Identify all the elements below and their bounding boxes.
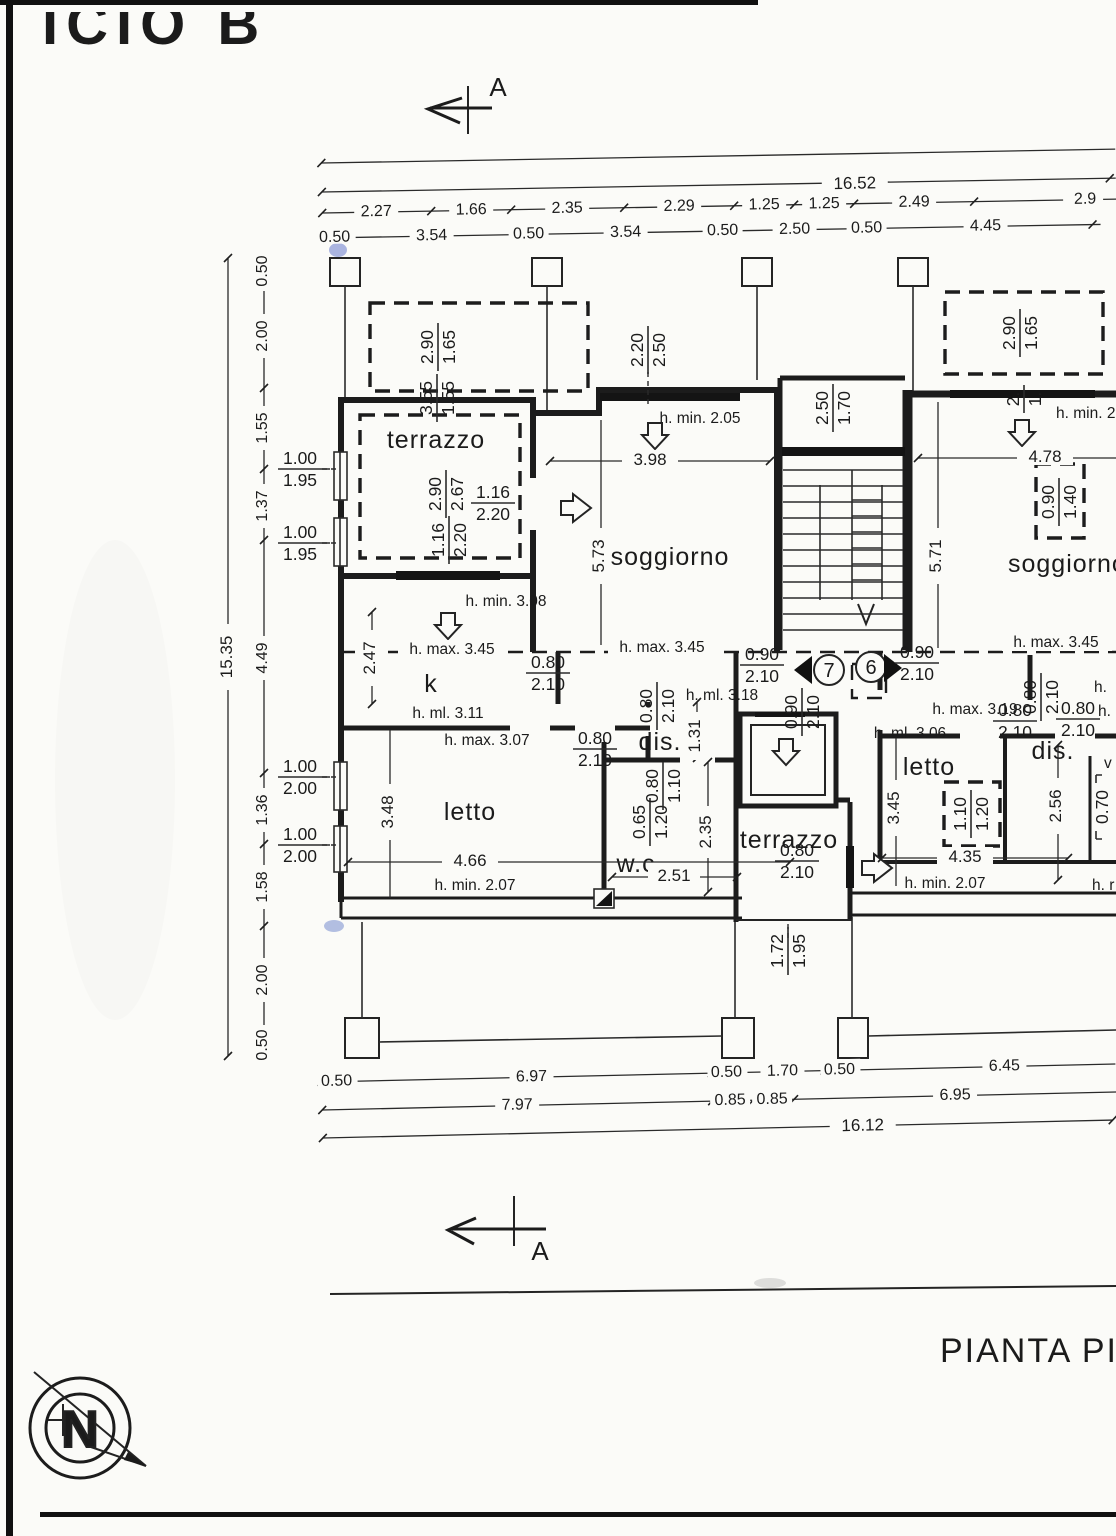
dim-hall-door-left: 0.902.10 — [740, 644, 784, 686]
dim-wall: 0.50 — [513, 225, 545, 243]
dim-letto-w: 4.66 — [453, 851, 486, 870]
dim-letto-left-door: 0.802.10 — [573, 728, 617, 770]
dim-soggiorno-right-window: 0.901.40 — [1038, 478, 1080, 526]
svg-text:2.50: 2.50 — [812, 391, 832, 425]
svg-text:2.10: 2.10 — [578, 750, 612, 770]
arrow-right-terrazzo-icon — [561, 494, 591, 522]
dim-kitchen-h: 2.47 — [360, 641, 379, 674]
dim-terrazzo-door-s: 1.162.20 — [428, 516, 470, 564]
dim-b: 0.50 — [711, 1063, 743, 1081]
room-letto-left: letto — [444, 798, 496, 826]
note-hmax345-b: h. max. 3.45 — [619, 639, 704, 656]
dim-l: 2.00 — [254, 320, 271, 351]
left-window-labels: 1.001.95 1.001.95 1.002.00 1.002.00 — [278, 448, 330, 866]
svg-text:2.: 2. — [1003, 392, 1023, 407]
dim-left-total: 15.35 — [217, 636, 236, 679]
svg-text:0.70: 0.70 — [1092, 790, 1112, 824]
svg-text:2.10: 2.10 — [531, 674, 565, 694]
room-soggiorno-right: soggiorno — [1008, 550, 1116, 578]
svg-text:2.10: 2.10 — [803, 695, 823, 729]
north-letter: N — [61, 1401, 99, 1459]
svg-text:2.10: 2.10 — [1042, 680, 1062, 714]
dim-soggiorno-right-w: 4.78 — [1028, 447, 1061, 466]
dim-dis-left-door: 0.802.10 — [636, 682, 678, 730]
unit-number-left: 7 — [823, 660, 834, 682]
svg-text:1.10: 1.10 — [664, 769, 684, 803]
dim-b: 0.50 — [824, 1061, 856, 1079]
dim-dis-right-h: 2.56 — [1046, 789, 1065, 822]
note-hmax307: h. max. 3.07 — [444, 732, 529, 749]
dim-letto-h: 3.48 — [378, 795, 397, 828]
svg-text:2.50: 2.50 — [649, 333, 669, 367]
note-hmin2: h. min. 2 — [1056, 405, 1115, 422]
dim-wc-h: 2.35 — [696, 815, 715, 848]
room-dis-left: dis. — [639, 728, 682, 756]
svg-text:0.80: 0.80 — [636, 689, 656, 723]
dim-soggiorno-h: 5.73 — [589, 539, 608, 572]
svg-text:0.80: 0.80 — [780, 840, 814, 860]
floor-plan-sheet: ICIO B A 16.52 2.27 1.66 2.35 2.29 1.25 … — [0, 0, 1116, 1536]
dim-l: 1.37 — [254, 490, 271, 521]
staircase — [783, 470, 903, 630]
svg-text:2.90: 2.90 — [417, 330, 437, 364]
dim-b: 7.97 — [501, 1096, 533, 1114]
dim-wall: 2.50 — [779, 220, 811, 238]
svg-text:1.65: 1.65 — [1021, 316, 1041, 350]
bottom-dimension-chains: 0.50 6.97 0.50 1.70 0.50 6.45 7.97 0.85 … — [317, 1053, 1116, 1147]
dim-seg: 2.27 — [360, 203, 392, 221]
svg-text:0.80: 0.80 — [531, 652, 565, 672]
dim-ne-fragment: 2.1. — [1003, 385, 1045, 413]
svg-text:2.90: 2.90 — [425, 477, 445, 511]
svg-text:1.70: 1.70 — [834, 391, 854, 425]
divider-line — [330, 1286, 1116, 1294]
dim-wc-window: 0.651.20 — [629, 798, 671, 846]
dim-wall: 3.54 — [610, 223, 642, 241]
svg-text:0.90: 0.90 — [781, 695, 801, 729]
dim-wall: 4.45 — [970, 217, 1002, 235]
room-kitchen: k — [424, 670, 438, 698]
plan-title: PIANTA PIA — [940, 1332, 1116, 1370]
svg-text:1.: 1. — [1025, 392, 1045, 407]
dim-right-wing-h: 5.71 — [926, 539, 945, 572]
svg-text:2.20: 2.20 — [476, 504, 510, 524]
svg-text:2.20: 2.20 — [450, 523, 470, 557]
svg-text:1.16: 1.16 — [428, 523, 448, 557]
dim-terrazzo-top: 3.551.55 — [416, 374, 458, 422]
svg-text:1.72: 1.72 — [767, 934, 787, 968]
dashed-overhangs — [360, 292, 1103, 846]
note-frag-b: h. — [1098, 703, 1111, 720]
note-hmax319: h. max. 3.19 — [932, 701, 1017, 718]
svg-text:1.65: 1.65 — [439, 330, 459, 364]
note-hmin308: h. min. 3.08 — [466, 593, 547, 610]
svg-text:1.55: 1.55 — [438, 381, 458, 415]
dim-terrazzo-main: 2.902.67 — [425, 470, 467, 518]
svg-text:1.40: 1.40 — [1060, 485, 1080, 519]
svg-text:2.10: 2.10 — [998, 722, 1032, 742]
dim-seg: 2.9 — [1074, 190, 1097, 207]
dim-letto-right-window: 1.101.20 — [950, 790, 992, 838]
sheet-title-text: ICIO B — [42, 0, 267, 57]
note-hml318: h. ml. 3.18 — [686, 687, 758, 704]
dim-top-walls: 0.50 3.54 0.50 3.54 0.50 2.50 0.50 4.45 — [315, 215, 1007, 246]
dim-seg: 2.49 — [898, 193, 930, 211]
svg-text:0.90: 0.90 — [900, 642, 934, 662]
dim-soggiorno-w: 3.98 — [633, 450, 666, 469]
arrow-down-right-icon — [1009, 420, 1035, 446]
entrance-doors: 7 6 — [794, 652, 902, 685]
dim-dis-right-door-b: 0.802.10 — [1056, 698, 1100, 740]
dim-l: 1.55 — [254, 412, 271, 443]
note-hmin207-b: h. min. 2.07 — [905, 875, 986, 892]
svg-text:1.00: 1.00 — [283, 756, 317, 776]
svg-text:0.80: 0.80 — [1061, 698, 1095, 718]
svg-text:1.20: 1.20 — [972, 797, 992, 831]
top-dimension-chains: 16.52 2.27 1.66 2.35 2.29 1.25 1.25 2.49… — [314, 145, 1116, 246]
dim-stair-window: 2.501.70 — [812, 384, 854, 432]
note-hmax345-a: h. max. 3.45 — [409, 641, 494, 658]
dim-left-items: 0.50 2.00 1.55 1.37 4.49 1.36 1.58 2.00 … — [253, 251, 271, 1065]
dim-bottom-walls: 0.50 6.97 0.50 1.70 0.50 6.45 — [317, 1055, 1026, 1090]
svg-text:2.67: 2.67 — [447, 477, 467, 511]
svg-text:1.95: 1.95 — [789, 934, 809, 968]
dim-l: 1.36 — [254, 794, 271, 825]
dim-letto-right-w: 4.35 — [948, 847, 981, 866]
dim-balcony-ne: 2.901.65 — [999, 309, 1041, 357]
room-letto-right: letto — [903, 753, 955, 781]
svg-text:1.95: 1.95 — [283, 544, 317, 564]
note-hmin205: h. min. 2.05 — [660, 410, 741, 427]
left-dimension-chains: 15.35 0.50 2.00 1.55 1.37 4.49 1.36 1.58… — [216, 251, 330, 1065]
svg-text:0.90: 0.90 — [745, 644, 779, 664]
dim-terrazzo-s-door: 0.802.10 — [775, 840, 819, 882]
dim-l: 2.00 — [254, 964, 271, 995]
dim-soggiorno-window: 2.202.50 — [627, 326, 669, 374]
svg-text:0.90: 0.90 — [1038, 485, 1058, 519]
door-arrow-left-icon — [794, 656, 812, 684]
dim-l: 0.50 — [254, 255, 271, 286]
svg-text:2.10: 2.10 — [745, 666, 779, 686]
dim-wall: 0.50 — [851, 219, 883, 237]
dim-wall: 0.50 — [319, 229, 351, 247]
note-hmax345-c: h. max. 3.45 — [1013, 634, 1098, 651]
dim-l: 0.50 — [254, 1029, 271, 1060]
svg-text:2.10: 2.10 — [1061, 720, 1095, 740]
section-label-top: A — [489, 72, 507, 102]
dim-seg: 1.25 — [808, 195, 840, 213]
svg-text:0.65: 0.65 — [629, 805, 649, 839]
svg-text:2.00: 2.00 — [283, 778, 317, 798]
sheet-title: ICIO B — [42, 0, 267, 57]
svg-text:0.80: 0.80 — [642, 769, 662, 803]
dim-b: 1.70 — [767, 1062, 799, 1080]
north-arrow: N — [30, 1372, 146, 1478]
svg-text:1.00: 1.00 — [283, 824, 317, 844]
note-frag-a: h. — [1094, 679, 1107, 696]
dim-b: 6.45 — [989, 1057, 1021, 1075]
dim-wc-door: 0.801.10 — [642, 762, 684, 810]
note-hml311: h. ml. 3.11 — [412, 705, 483, 722]
dim-bottom-total: 16.12 — [841, 1115, 884, 1135]
dim-b: 0.50 — [321, 1072, 353, 1090]
section-label-bottom: A — [531, 1236, 549, 1266]
dim-letto-right-h: 3.45 — [884, 791, 903, 824]
unit-number-right: 6 — [865, 657, 876, 679]
svg-text:1.16: 1.16 — [476, 482, 510, 502]
svg-text:1.10: 1.10 — [950, 797, 970, 831]
balcony-nw — [370, 303, 588, 391]
note-frag-v: v — [1104, 755, 1112, 772]
note-hmin207-a: h. min. 2.07 — [435, 877, 516, 894]
dim-b: 0.85 — [756, 1090, 788, 1108]
section-marker-bottom: A — [448, 1196, 549, 1266]
svg-text:2.00: 2.00 — [283, 846, 317, 866]
arrow-down-terrazzo-icon — [435, 613, 461, 639]
dim-b: 0.85 — [714, 1091, 746, 1109]
note-frag-c: h. r — [1092, 877, 1114, 894]
dim-b: 6.95 — [939, 1086, 971, 1104]
room-terrazzo-nw: terrazzo — [387, 426, 485, 454]
dim-balcony-nw: 2.901.65 — [417, 323, 459, 371]
svg-text:1.20: 1.20 — [651, 805, 671, 839]
dim-wall: 0.50 — [707, 222, 739, 240]
dim-b: 6.97 — [516, 1068, 548, 1086]
dim-l: 1.58 — [254, 871, 271, 902]
svg-text:2.90: 2.90 — [999, 316, 1019, 350]
svg-text:0.80: 0.80 — [578, 728, 612, 748]
room-soggiorno: soggiorno — [611, 543, 730, 571]
dim-seg: 1.66 — [455, 201, 487, 219]
dim-hall-door-right: 0.902.10 — [895, 642, 939, 684]
dim-top-total: 16.52 — [833, 173, 876, 193]
dim-seg: 2.35 — [551, 199, 583, 217]
dim-wall: 3.54 — [416, 227, 448, 245]
section-marker-top: A — [428, 72, 507, 134]
dim-seg: 2.29 — [663, 197, 695, 215]
svg-text:2.10: 2.10 — [780, 862, 814, 882]
svg-text:2.20: 2.20 — [627, 333, 647, 367]
svg-text:1.00: 1.00 — [283, 448, 317, 468]
svg-text:2.10: 2.10 — [658, 689, 678, 723]
dim-wc-w: 2.51 — [657, 866, 690, 885]
svg-text:1.95: 1.95 — [283, 470, 317, 490]
dim-seg: 1.25 — [748, 196, 780, 214]
svg-text:2.10: 2.10 — [900, 664, 934, 684]
svg-text:1.00: 1.00 — [283, 522, 317, 542]
dim-kitchen-door: 0.802.10 — [526, 652, 570, 694]
dim-dis-right-width: 0.70 — [1092, 775, 1112, 839]
dim-terrazzo-door-e: 1.162.20 — [471, 482, 515, 524]
room-dis-right: dis. — [1032, 737, 1075, 765]
dim-l: 4.49 — [254, 642, 271, 673]
note-hml306: h. ml. 3.06 — [874, 725, 946, 742]
dim-elevator-door: 0.902.10 — [781, 688, 823, 736]
dim-bottom-inner: 7.97 0.85 0.85 6.95 — [495, 1084, 977, 1114]
dim-dis-h: 1.31 — [685, 719, 704, 752]
svg-text:3.55: 3.55 — [416, 381, 436, 415]
